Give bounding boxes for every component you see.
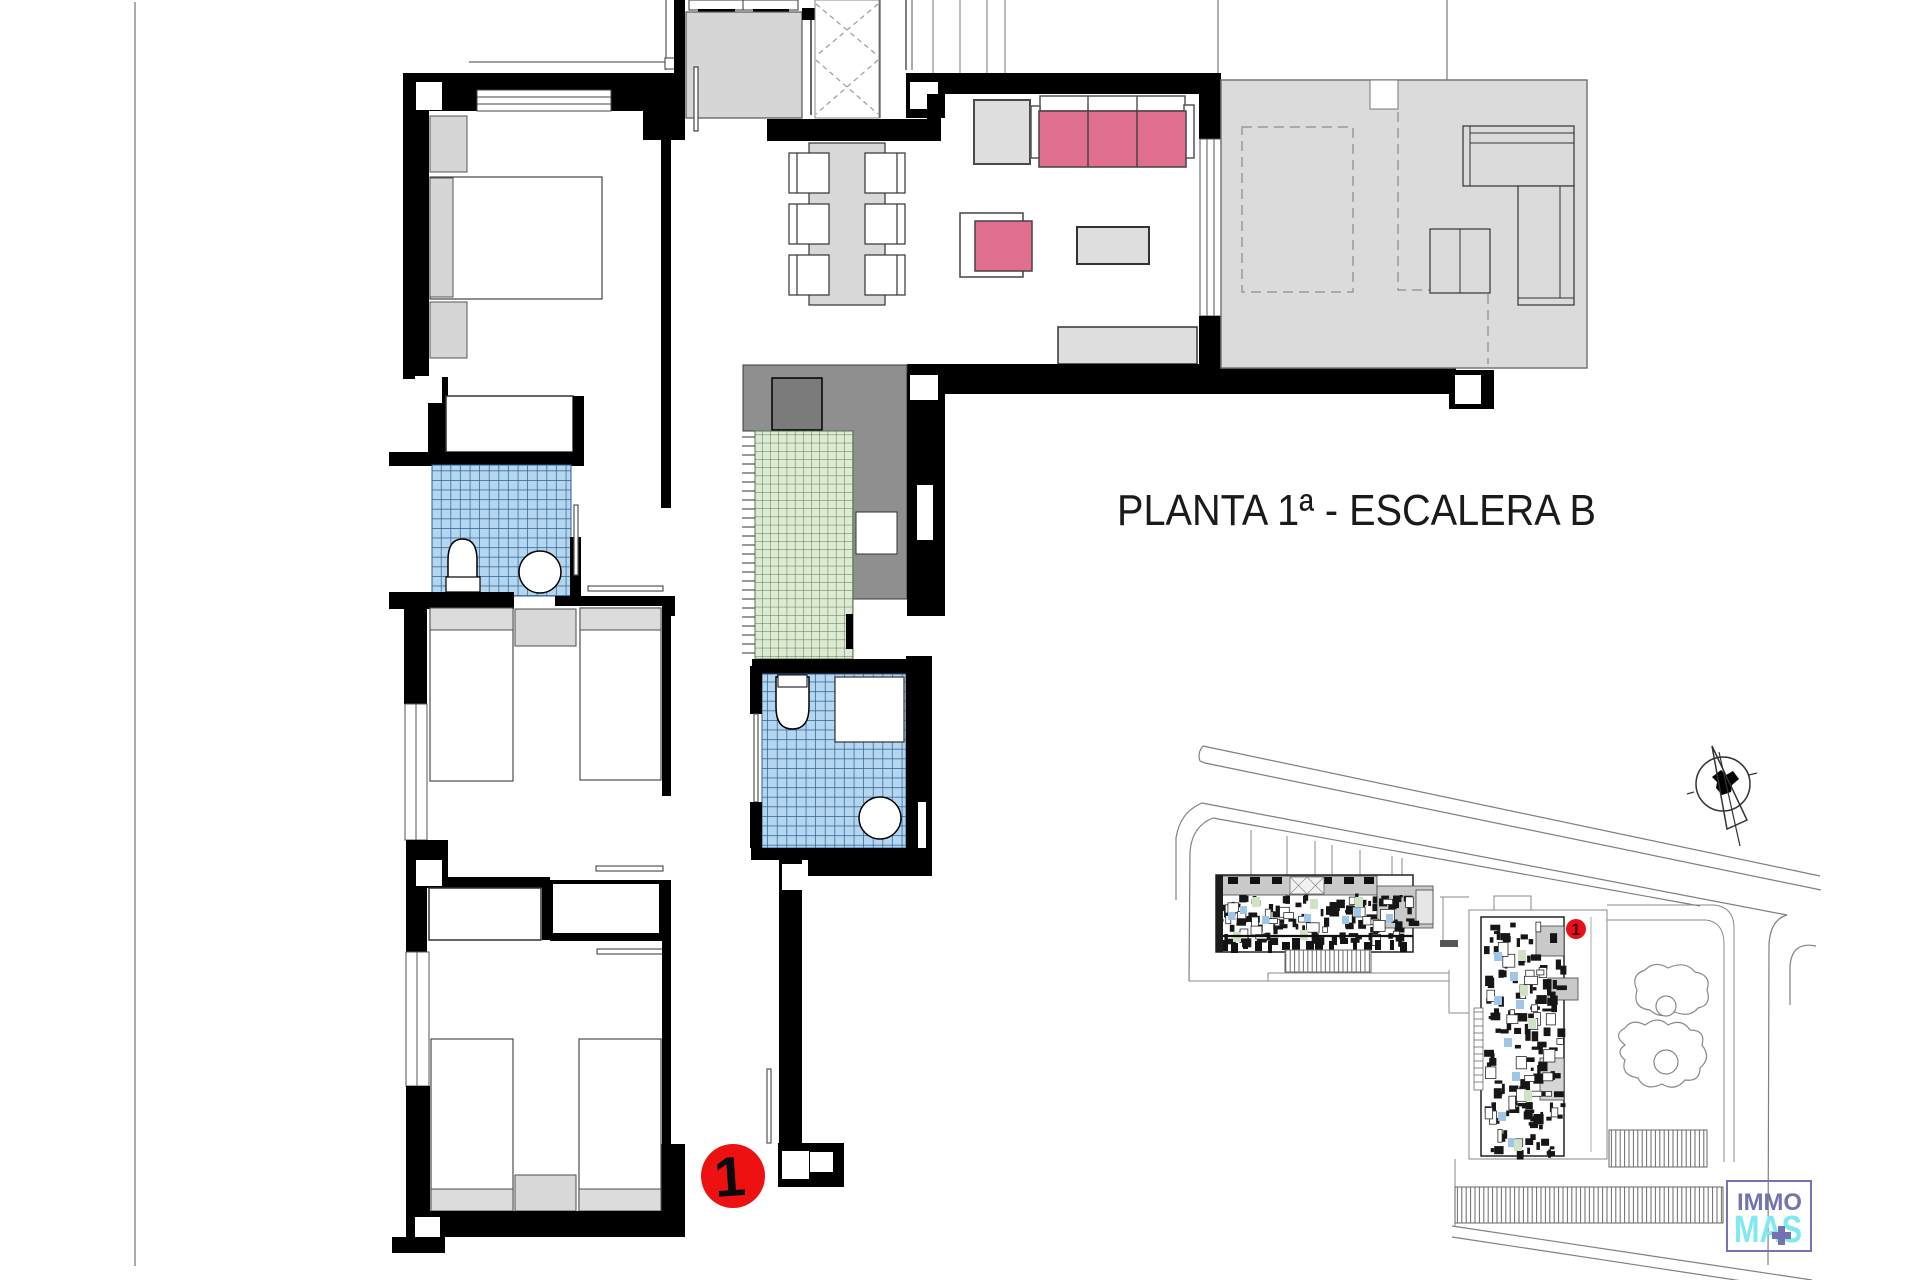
svg-text:1: 1 — [1571, 920, 1580, 939]
svg-text:1: 1 — [712, 1144, 747, 1209]
svg-text:PLANTA 1ª - ESCALERA B: PLANTA 1ª - ESCALERA B — [1117, 486, 1596, 535]
svg-text:MAS: MAS — [1734, 1209, 1802, 1251]
